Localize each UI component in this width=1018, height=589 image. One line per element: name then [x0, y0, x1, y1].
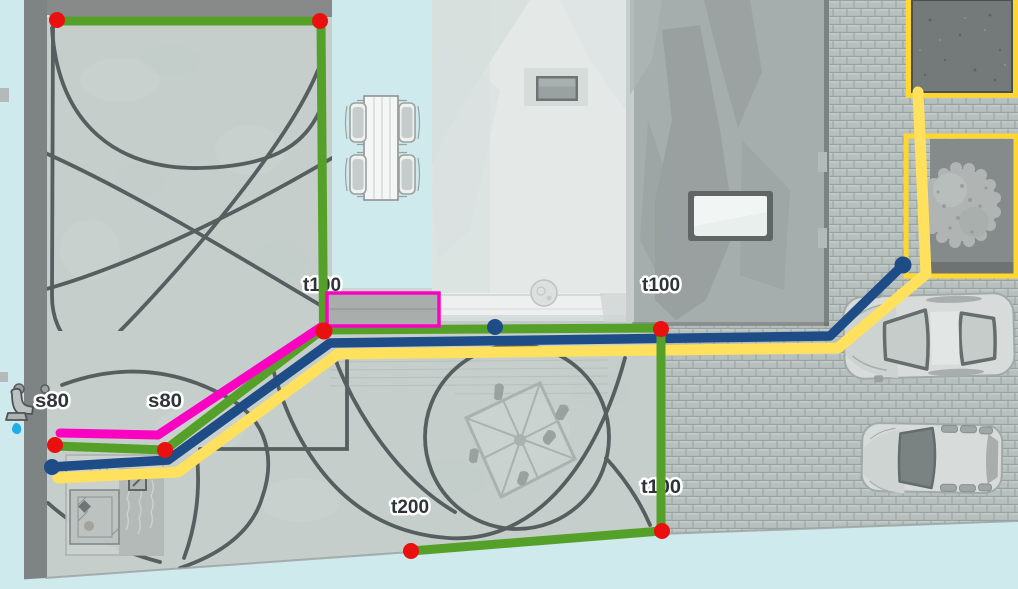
- svg-text:s80: s80: [148, 391, 182, 412]
- svg-text:t100: t100: [642, 275, 680, 296]
- svg-text:s80: s80: [35, 391, 69, 412]
- svg-text:t200: t200: [391, 497, 429, 518]
